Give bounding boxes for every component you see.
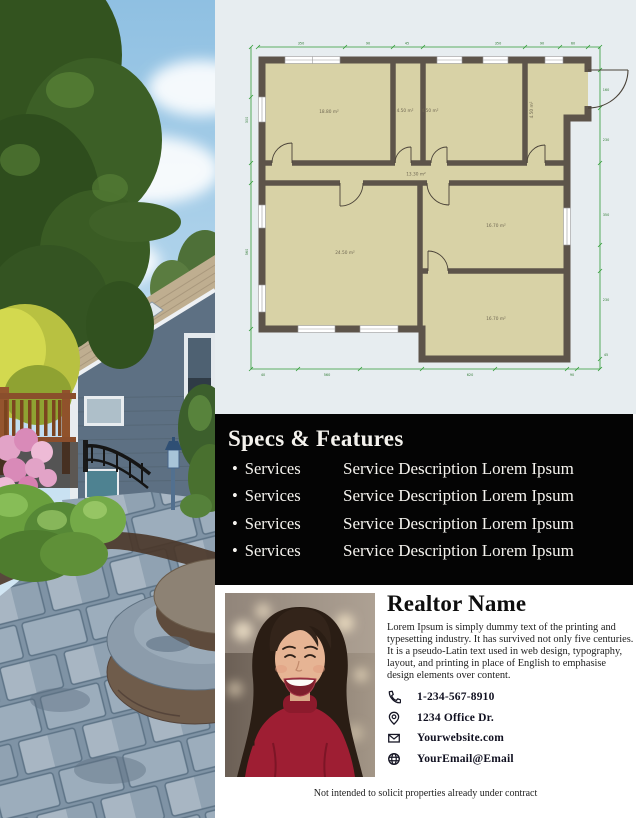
spec-description: Service Description Lorem Ipsum [343, 486, 633, 506]
email-address: YourEmail@Email [417, 753, 514, 765]
contact-list: 1-234-567-8910 1234 Office Dr. Yourwebsi… [387, 690, 636, 766]
phone-icon [387, 690, 401, 704]
bullet: • [232, 459, 238, 479]
floor-plan-drawing: 350 90 45 350 90 60 300 560 160 230 350 … [215, 0, 636, 414]
disclaimer-text: Not intended to solicit properties alrea… [215, 788, 636, 799]
spec-description: Service Description Lorem Ipsum [343, 459, 633, 479]
room-label: 18.80 m² [319, 109, 339, 115]
room-label: 4.50 m² [397, 108, 414, 114]
realtor-info: Realtor Name Lorem Ipsum is simply dummy… [387, 591, 636, 772]
room-label: 4.50 m² [529, 101, 535, 118]
dim-label: 560 [245, 249, 249, 255]
room-label: 16.70 m² [486, 316, 506, 322]
spec-service-label: Services [245, 541, 301, 561]
spec-row: •Services Service Description Lorem Ipsu… [215, 541, 633, 568]
glass-door [86, 470, 118, 498]
website-url: Yourwebsite.com [417, 732, 504, 744]
dim-label: 90 [540, 42, 544, 46]
spec-description: Service Description Lorem Ipsum [343, 514, 633, 534]
spec-service-label: Services [245, 514, 301, 534]
dim-label: 90 [570, 373, 574, 377]
dim-label: 90 [366, 42, 370, 46]
house-photo-illustration [0, 0, 215, 818]
room-label: 16.70 m² [486, 223, 506, 229]
bullet: • [232, 541, 238, 561]
spec-row: •Services Service Description Lorem Ipsu… [215, 486, 633, 513]
house-exterior-photo [0, 0, 215, 818]
dim-label: 350 [298, 42, 304, 46]
spec-row: •Services Service Description Lorem Ipsu… [215, 459, 633, 486]
dim-label: 350 [603, 213, 609, 217]
spec-service-label: Services [245, 486, 301, 506]
contact-row-phone: 1-234-567-8910 [387, 690, 636, 704]
office-address: 1234 Office Dr. [417, 712, 494, 724]
realtor-portrait-photo [225, 593, 375, 777]
contact-row-email: YourEmail@Email [387, 752, 636, 766]
envelope-icon [387, 731, 401, 745]
room-label: 24.50 m² [335, 250, 355, 256]
spec-description: Service Description Lorem Ipsum [343, 541, 633, 561]
dim-label: 160 [603, 88, 609, 92]
dim-label: 45 [405, 42, 409, 46]
dim-label: 60 [571, 42, 575, 46]
realtor-bio: Lorem Ipsum is simply dummy text of the … [387, 622, 635, 682]
dim-label: 560 [324, 373, 330, 377]
location-pin-icon [387, 711, 401, 725]
floor-plan-panel: 350 90 45 350 90 60 300 560 160 230 350 … [215, 0, 636, 414]
realtor-portrait-illustration [225, 593, 375, 777]
real-estate-flyer: 350 90 45 350 90 60 300 560 160 230 350 … [0, 0, 636, 818]
globe-icon [387, 752, 401, 766]
realtor-card: Realtor Name Lorem Ipsum is simply dummy… [215, 585, 636, 818]
bullet: • [232, 486, 238, 506]
dim-label: 230 [603, 298, 609, 302]
bullet: • [232, 514, 238, 534]
spec-row: •Services Service Description Lorem Ipsu… [215, 514, 633, 541]
realtor-name: Realtor Name [387, 591, 636, 617]
phone-number: 1-234-567-8910 [417, 691, 495, 703]
dim-label: 230 [603, 138, 609, 142]
dim-label: 40 [261, 373, 265, 377]
dim-label: 620 [467, 373, 473, 377]
spec-service-label: Services [245, 459, 301, 479]
specs-title: Specs & Features [215, 414, 633, 459]
dim-label: 45 [604, 353, 608, 357]
room-label: 4.50 m² [422, 108, 439, 114]
dim-label: 350 [495, 42, 501, 46]
contact-row-website: Yourwebsite.com [387, 731, 636, 745]
room-label: 13.30 m² [406, 172, 426, 178]
contact-row-address: 1234 Office Dr. [387, 711, 636, 725]
specs-features-section: Specs & Features •Services Service Descr… [215, 414, 633, 585]
dim-label: 300 [245, 117, 249, 123]
